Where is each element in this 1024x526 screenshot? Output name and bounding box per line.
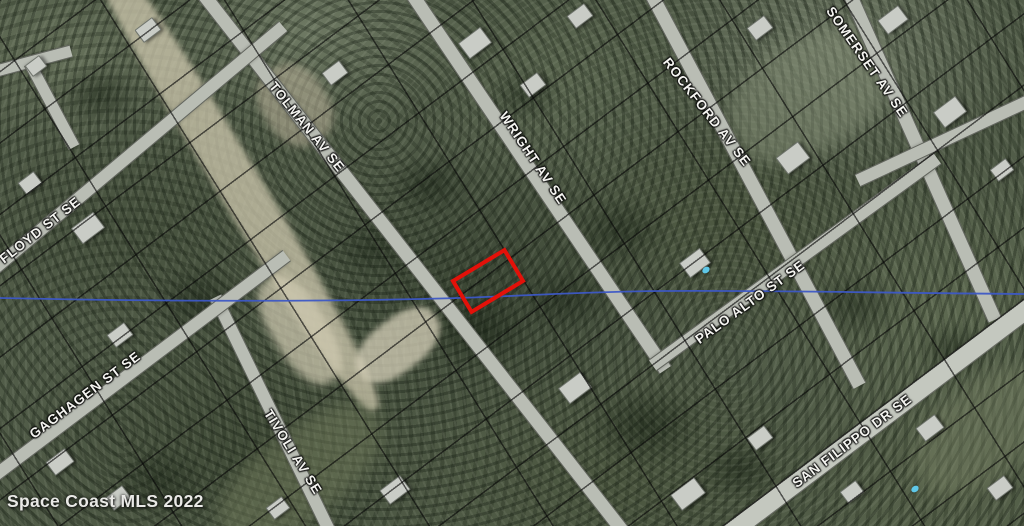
mls-watermark: Space Coast MLS 2022 bbox=[7, 491, 204, 512]
aerial-map-photo: TOLMAN AV SEWRIGHT AV SEROCKFORD AV SESO… bbox=[0, 0, 1024, 526]
